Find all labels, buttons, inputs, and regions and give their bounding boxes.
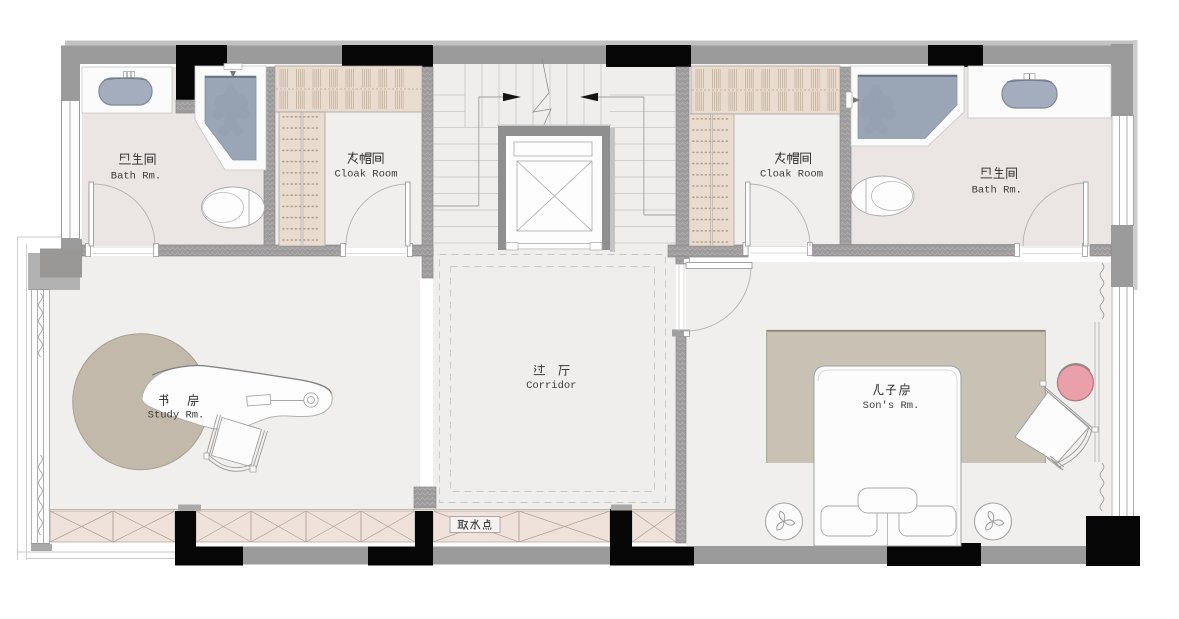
- svg-text:Cloak Room: Cloak Room: [760, 169, 823, 181]
- svg-text:Bath Rm.: Bath Rm.: [111, 171, 161, 183]
- svg-text:Cloak Room: Cloak Room: [334, 169, 397, 181]
- svg-text:Corridor: Corridor: [526, 380, 576, 392]
- svg-text:Son's Rm.: Son's Rm.: [863, 400, 920, 412]
- svg-text:Bath Rm.: Bath Rm.: [972, 185, 1022, 197]
- svg-text:Study Rm.: Study Rm.: [148, 410, 205, 422]
